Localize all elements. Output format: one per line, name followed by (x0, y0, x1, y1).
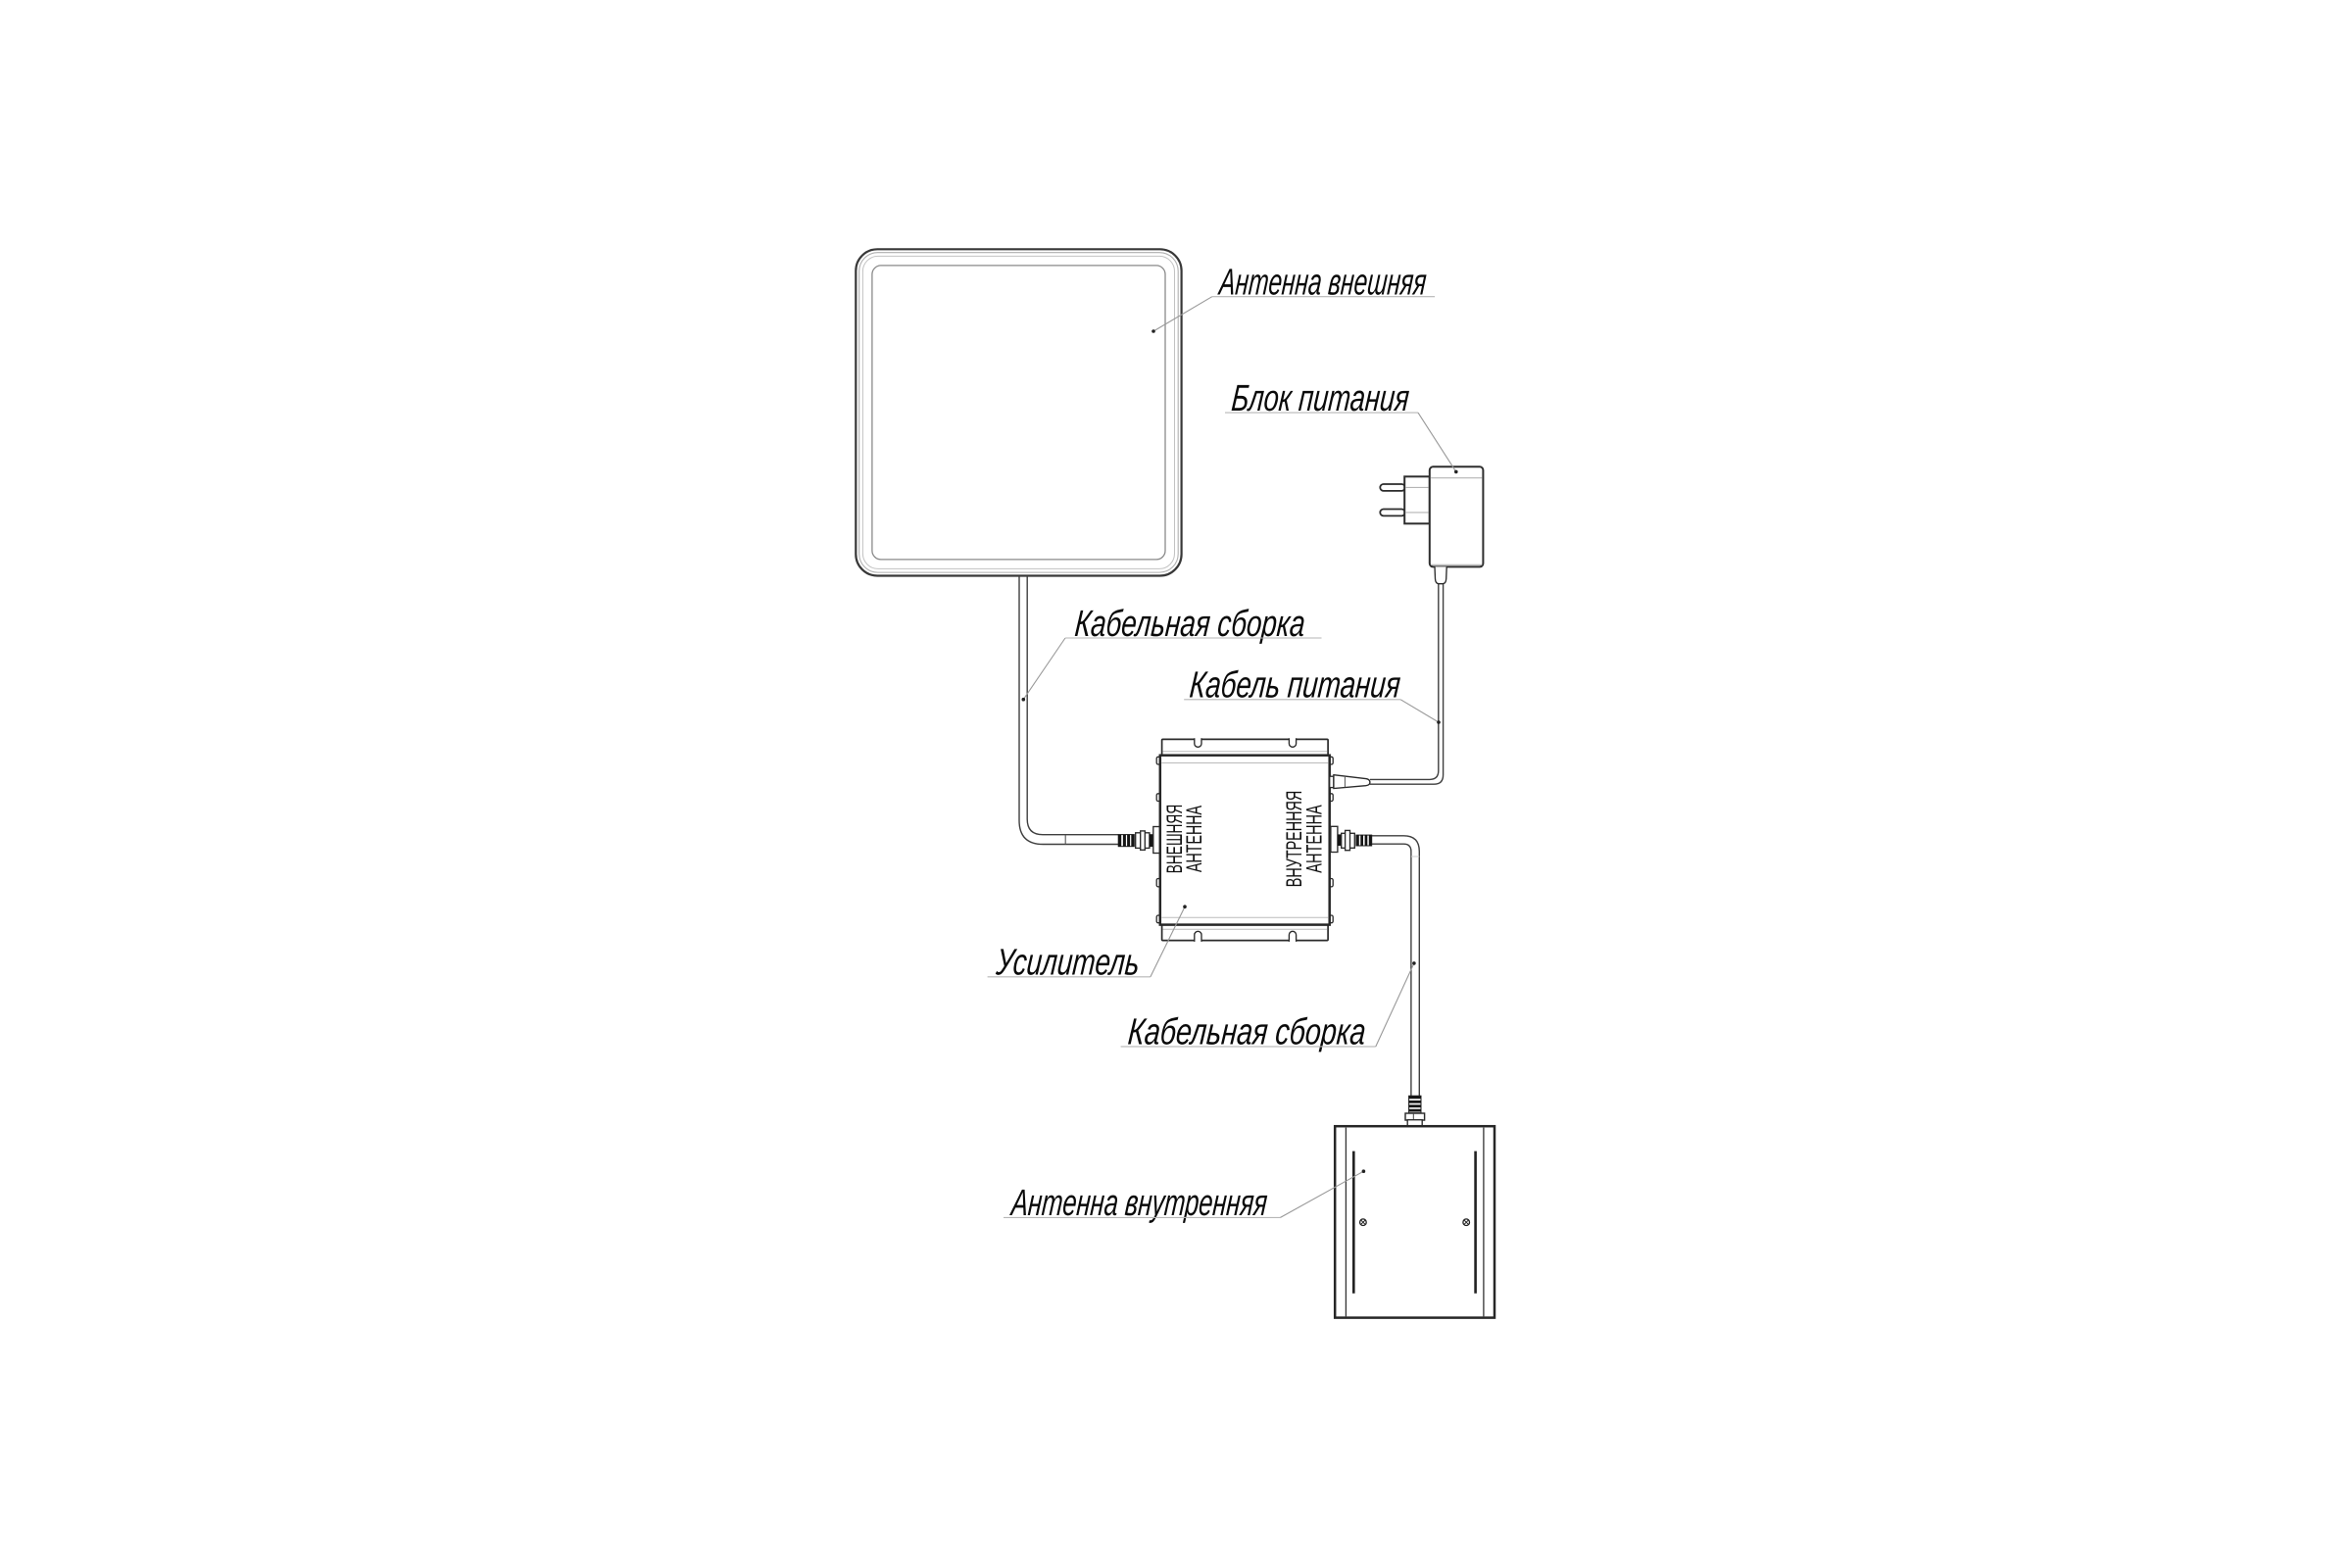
svg-text:АНТЕННА: АНТЕННА (1182, 806, 1206, 872)
svg-text:АНТЕННА: АНТЕННА (1302, 805, 1327, 873)
